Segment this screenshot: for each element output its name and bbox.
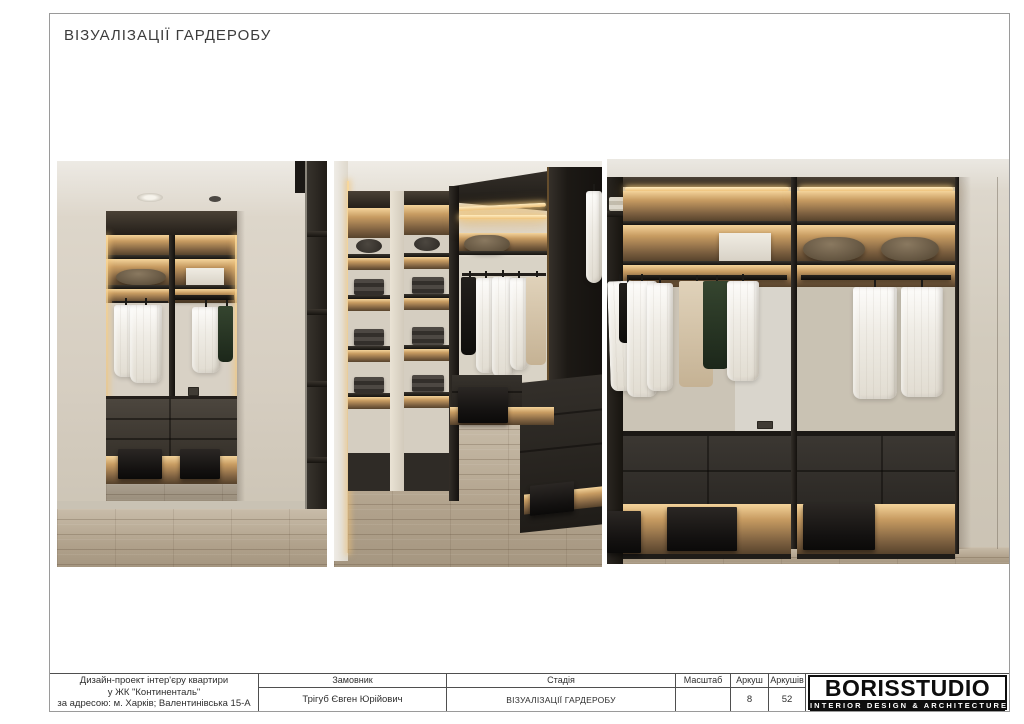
ceiling-light [209,196,221,202]
ceiling-light [137,193,163,202]
sheets-value: 52 [769,688,805,711]
render-wardrobe-front-view [607,159,1009,564]
drawer-seam [520,442,602,453]
pillow [881,237,939,261]
client-cell: Замовник Трігуб Євген Юрійович [258,674,446,711]
hanging-shirt [130,305,162,383]
sheet-value: 8 [731,688,768,711]
shelf-edge [307,309,327,315]
folded-clothes [412,327,444,345]
wood-floor [57,509,327,567]
drawer-seam [106,438,237,440]
client-value: Трігуб Євген Юрійович [259,688,446,711]
wall-corner-line [997,177,998,549]
niche-soffit [106,211,237,235]
page-title: ВІЗУАЛІЗАЦІЇ ГАРДЕРОБУ [64,27,271,44]
led-strip [459,215,547,219]
storage-box [180,449,220,479]
hat [356,239,382,253]
bay-soffit [623,177,791,187]
hanging-shirt [647,283,673,391]
storage-box [667,507,737,551]
drawer-seam [707,436,709,504]
project-line: за адресою: м. Харків; Валентинівська 15… [57,698,250,710]
project-info: Дизайн-проект інтер'єру квартири у ЖК "К… [50,674,258,711]
shelf-edge [307,457,327,463]
hanging-garment-beige [526,277,546,365]
lit-shelf-compartment [404,298,449,310]
scale-label: Масштаб [676,674,730,688]
drawer-unit [797,436,955,504]
logo-box: BORISSTUDIO INTERIOR DESIGN & ARCHITECTU… [808,675,1007,710]
sheets-label: Аркушів [769,674,805,688]
hanging-shirt [586,191,602,283]
storage-box [607,511,641,553]
folded-clothes [354,377,384,393]
client-label: Замовник [259,674,446,688]
hanging-garment-dark [461,277,476,355]
hanging-shirt [192,307,220,373]
hanging-rail [627,275,787,280]
lit-shelf-compartment [404,349,449,361]
project-line: Дизайн-проект інтер'єру квартири [80,675,228,687]
partition-post [169,235,175,396]
pillow [116,269,166,285]
column-cap [404,191,449,205]
wardrobe-niche [106,211,237,517]
scale-cell: Масштаб [675,674,730,711]
shelf-edge [307,381,327,387]
sheet-label: Аркуш [731,674,768,688]
hanging-shirt [727,281,759,381]
power-outlet [188,387,199,396]
lit-shelf-compartment [404,205,449,235]
folded-clothes [412,375,444,392]
hanging-shirt [853,287,897,399]
lit-shelf-compartment [348,397,390,409]
lit-shelf-compartment [623,191,791,221]
stage-value: ВІЗУАЛІЗАЦІЇ ГАРДЕРОБУ [447,688,675,711]
bay-soffit [797,177,955,187]
mirror-strip [334,161,348,561]
power-outlet [757,421,773,429]
drawer-seam [106,418,237,420]
base-line [797,554,955,559]
column-cap [348,191,390,208]
lit-shelf-compartment [797,191,955,221]
folded-clothes [354,279,384,295]
project-line: у ЖК "Континенталь" [108,687,201,699]
title-block: Дизайн-проект інтер'єру квартири у ЖК "К… [50,673,1009,711]
lit-shelf-compartment [348,350,390,362]
lit-shelf-compartment [348,299,390,311]
sheet-frame: ВІЗУАЛІЗАЦІЇ ГАРДЕРОБУ [49,13,1010,712]
wall-shadow [237,211,245,511]
drawer-console [520,374,602,533]
folded-clothes [412,277,444,294]
partition-post [449,186,459,501]
storage-box-light [719,233,771,261]
folded-clothes [354,329,384,346]
wardrobe-bay [797,177,955,549]
shelf-column [348,191,390,491]
pillow [803,237,865,261]
open-shelf-unit [305,161,327,509]
hanging-garment-green [703,281,729,369]
drawer-unit [106,396,237,456]
logo-tagline: INTERIOR DESIGN & ARCHITECTURE [810,700,1005,711]
hanging-rail [801,275,951,280]
shelf-edge [459,251,547,255]
storage-box [118,449,162,479]
stage-cell: Стадія ВІЗУАЛІЗАЦІЇ ГАРДЕРОБУ [446,674,675,711]
hanging-shirt [901,287,943,397]
storage-box [458,387,508,423]
drawer-seam [169,399,171,459]
render-wardrobe-entrance-view [57,161,327,567]
column-base [404,453,449,491]
stage-label: Стадія [447,674,675,688]
shelf-column [404,191,449,491]
render-wardrobe-corner-view [334,161,602,567]
document-sheet: ВІЗУАЛІЗАЦІЇ ГАРДЕРОБУ [0,0,1024,724]
hanging-rail [112,301,168,303]
logo-wordmark: BORISSTUDIO [810,677,1005,700]
storage-box [803,504,875,550]
lit-shelf-compartment [348,258,390,270]
baseboard [57,501,305,509]
hat [414,237,440,251]
drawer-seam [797,470,955,472]
end-panel [955,177,959,554]
storage-box [530,481,574,516]
divider-panel [390,191,404,491]
drawer-unit [623,436,791,504]
wall-shadow [959,177,971,549]
column-base [348,453,390,491]
hanging-garment-green [218,306,233,362]
hanging-rail [462,273,546,276]
lit-shelf-compartment [404,396,449,408]
drawer-seam [881,436,883,504]
storage-box-light [186,268,224,285]
sheet-number-cell: Аркуш 8 [730,674,768,711]
lit-shelf-compartment [348,208,390,238]
sheet-count-cell: Аркушів 52 [768,674,805,711]
lit-shelf-compartment [404,257,449,269]
studio-logo: BORISSTUDIO INTERIOR DESIGN & ARCHITECTU… [805,674,1009,711]
base-line [623,554,791,559]
partition-post [791,177,797,549]
shelf-edge [307,231,327,237]
scale-value [676,688,730,711]
